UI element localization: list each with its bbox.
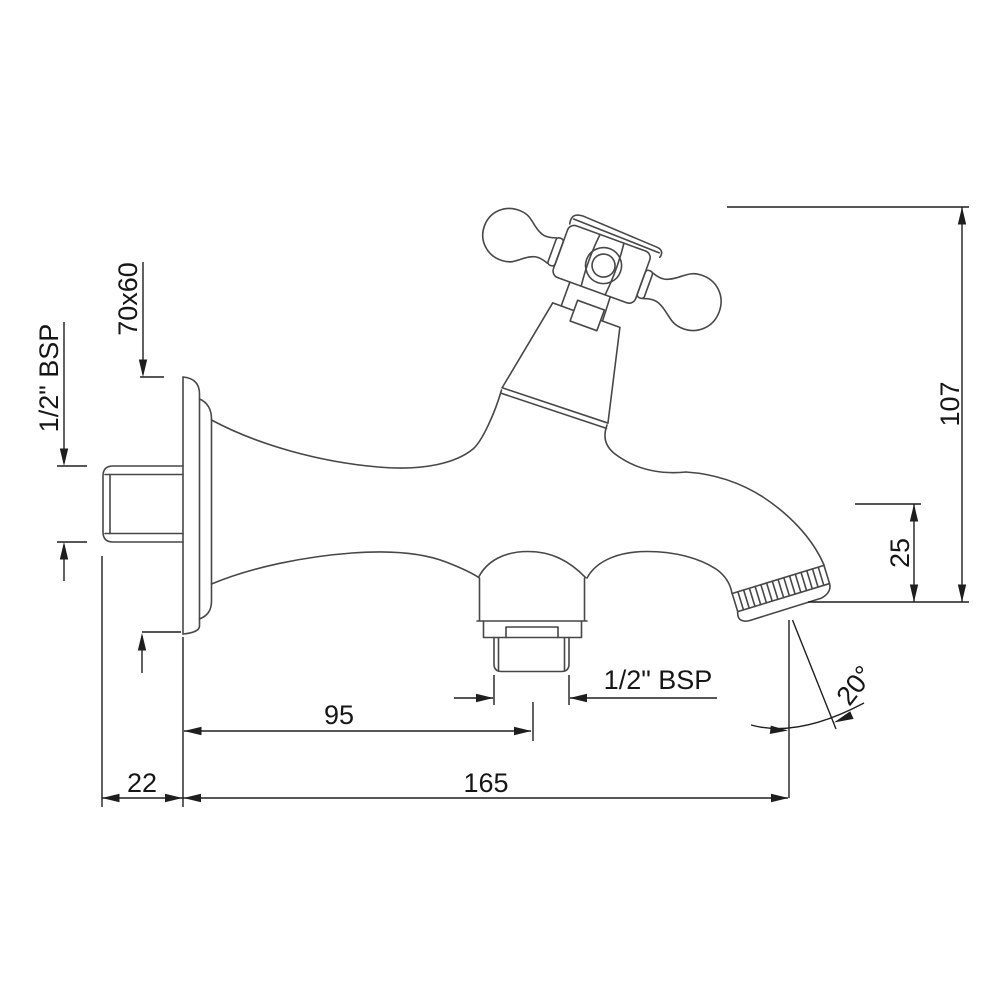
dim-107-lines xyxy=(727,207,969,602)
arrow-right-icon xyxy=(476,694,494,702)
arrow-down-icon xyxy=(139,360,147,378)
arrow-up-icon xyxy=(958,207,966,225)
spout-top-curve xyxy=(605,425,824,565)
flange-rim xyxy=(200,399,212,619)
dim-label-total-height: 107 xyxy=(935,381,965,426)
aerator-cap xyxy=(737,584,833,624)
faucet-technical-drawing: 70x60 1/2" BSP 107 25 1/2" B xyxy=(0,0,1000,1000)
outlet-nipple-threads xyxy=(499,638,565,671)
dim-label-spout-clearance: 25 xyxy=(885,538,915,568)
arrow-up-icon xyxy=(60,542,68,560)
inlet-pipe xyxy=(103,466,183,542)
arrow-down-icon xyxy=(60,449,68,467)
dim-inlet-thread: 1/2" BSP xyxy=(34,322,87,581)
dimension-annotations: 70x60 1/2" BSP 107 25 1/2" B xyxy=(34,207,969,807)
dim-total-height: 107 xyxy=(727,207,969,602)
dim-label-wall-to-outlet: 95 xyxy=(324,700,354,730)
arrow-down-icon xyxy=(910,585,918,603)
body-bottom-curve xyxy=(212,552,479,584)
dim-angle-lines xyxy=(789,620,836,798)
arrow-up-icon xyxy=(138,633,146,651)
faucet-outline xyxy=(103,186,833,672)
arrow-down-icon xyxy=(958,585,966,603)
bonnet-joint-lines xyxy=(500,385,608,431)
spout xyxy=(587,425,824,594)
dim-flange-lines xyxy=(140,262,181,673)
outlet-boss xyxy=(477,552,587,672)
body-top-curve xyxy=(212,390,502,468)
dim-wall-to-outlet: 95 xyxy=(184,700,533,741)
dim-outlet-thread: 1/2" BSP xyxy=(454,665,717,705)
inlet-outline xyxy=(103,466,183,542)
arrow-left-icon xyxy=(184,727,202,735)
arrow-right-icon xyxy=(165,794,183,802)
body-cone xyxy=(212,390,502,584)
dim-label-flange-size: 70x60 xyxy=(113,262,143,336)
drawing-canvas: 70x60 1/2" BSP 107 25 1/2" B xyxy=(0,0,1000,1000)
dim-spout-angle: 20° xyxy=(751,620,879,798)
handle-assembly xyxy=(433,186,734,454)
handle-cap xyxy=(569,213,664,258)
dim-flange-size: 70x60 xyxy=(113,262,181,673)
arrow-left-icon xyxy=(570,694,588,702)
spout-under-curve xyxy=(587,552,732,594)
dim-label-total-length: 165 xyxy=(463,768,508,798)
arrow-right-icon xyxy=(514,727,532,735)
arrow-up-icon xyxy=(910,504,918,522)
arrow-right-icon xyxy=(770,726,788,734)
flange-step xyxy=(183,377,200,634)
handle-cap-line xyxy=(573,219,660,253)
dim-label-spout-angle: 20° xyxy=(831,660,880,711)
outlet-collar-recess xyxy=(506,627,558,638)
arrow-left-icon xyxy=(102,794,120,802)
outlet-nipple xyxy=(494,638,569,672)
dim-label-inlet-thread: 1/2" BSP xyxy=(34,324,64,433)
dim-spout-clearance: 25 xyxy=(808,504,969,602)
bonnet-gland-notch xyxy=(570,300,604,330)
outlet-dome xyxy=(479,552,586,578)
arrow-right-icon xyxy=(771,794,789,802)
wall-flange xyxy=(183,377,212,634)
arrow-left-icon xyxy=(184,794,202,802)
dim-label-outlet-thread: 1/2" BSP xyxy=(604,665,713,695)
aerator xyxy=(731,565,833,623)
outlet-collar-sides xyxy=(484,621,582,638)
dim-label-wall-projection: 22 xyxy=(127,768,157,798)
dim-95-lines xyxy=(184,702,533,741)
